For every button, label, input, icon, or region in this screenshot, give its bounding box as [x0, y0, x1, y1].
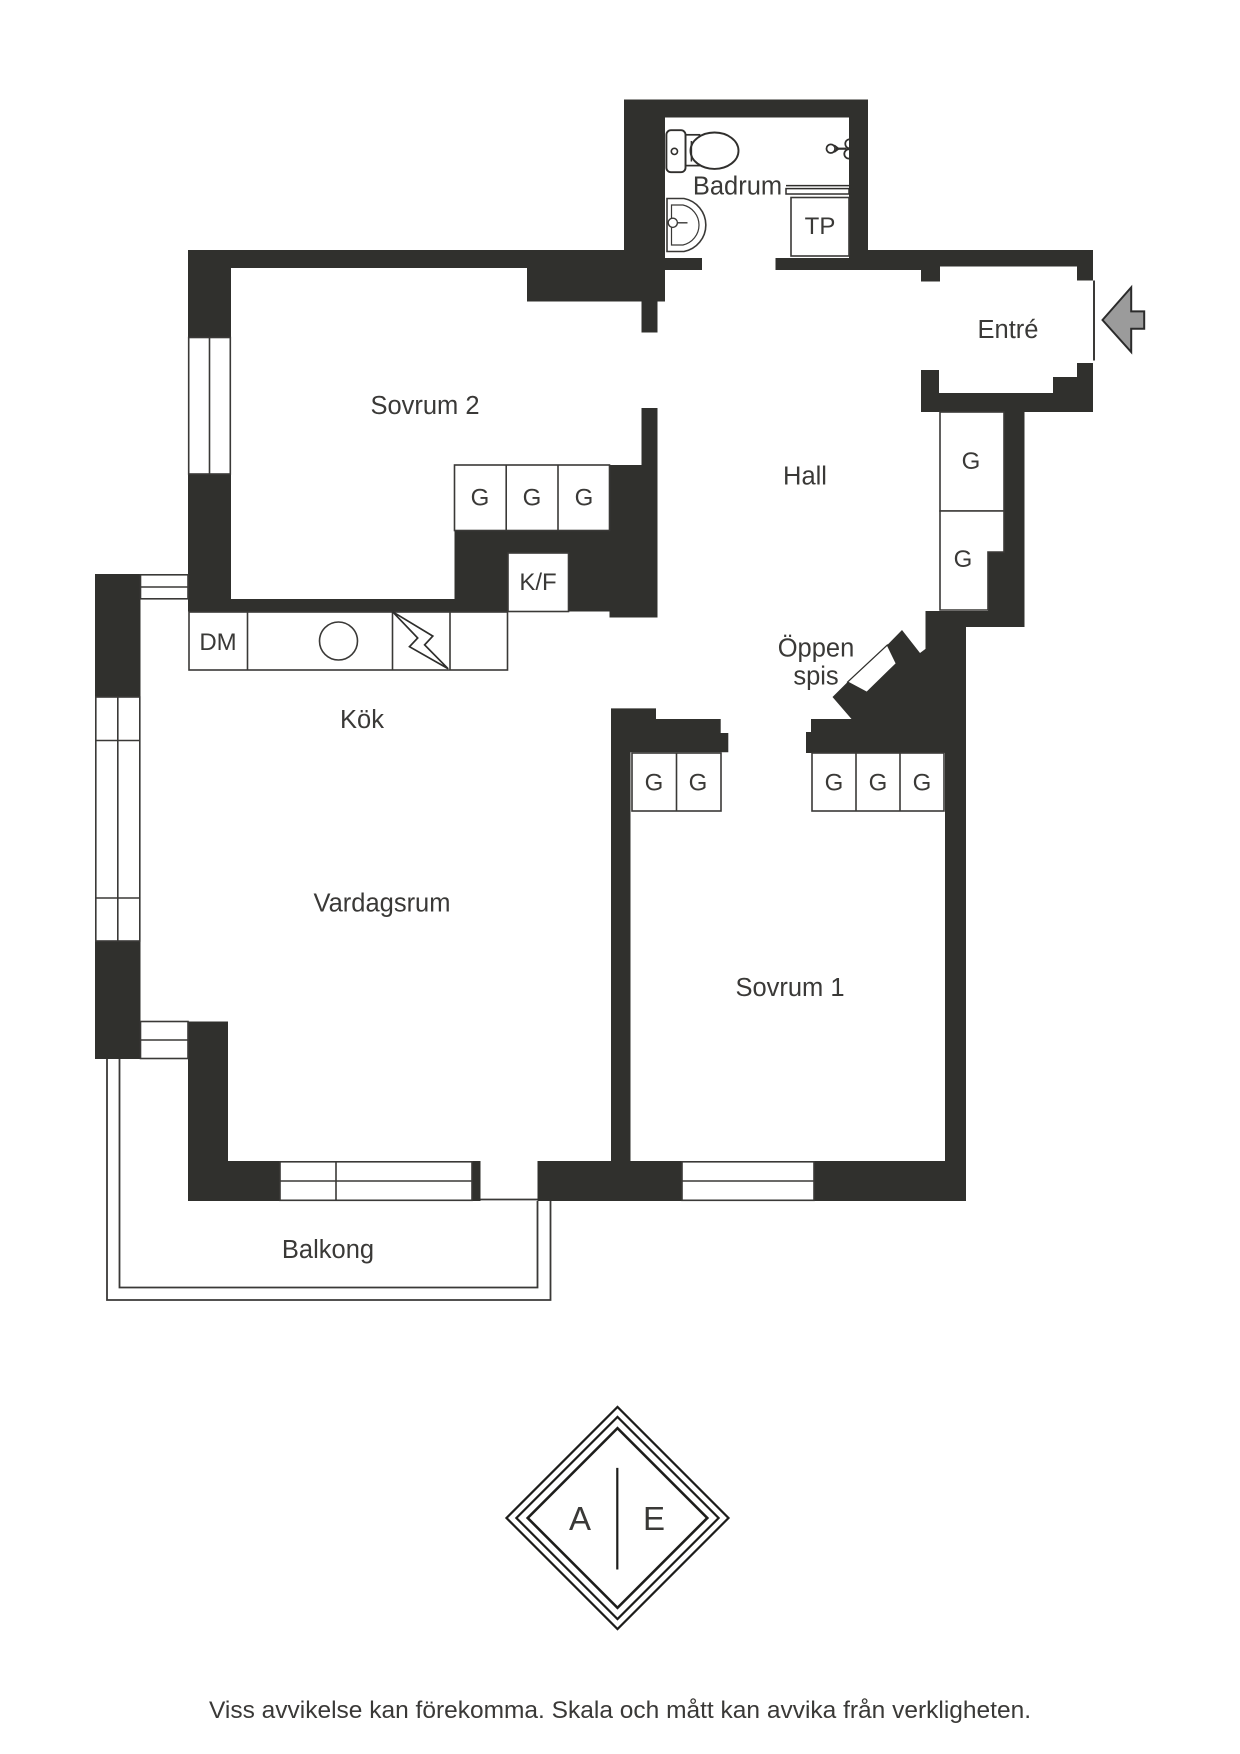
svg-text:G: G — [689, 770, 708, 797]
svg-text:spis: spis — [793, 663, 838, 691]
svg-text:DM: DM — [199, 629, 236, 656]
svg-text:TP: TP — [805, 213, 836, 240]
svg-text:E: E — [643, 1500, 665, 1537]
svg-text:Vardagsrum: Vardagsrum — [313, 890, 450, 918]
svg-text:K/F: K/F — [519, 569, 556, 596]
svg-text:Kök: Kök — [340, 706, 384, 734]
svg-text:G: G — [913, 770, 932, 797]
svg-text:A: A — [569, 1500, 591, 1537]
svg-text:Sovrum 1: Sovrum 1 — [735, 974, 844, 1002]
svg-text:G: G — [869, 770, 888, 797]
svg-text:Badrum: Badrum — [693, 173, 782, 201]
svg-text:Balkong: Balkong — [282, 1236, 374, 1264]
svg-text:G: G — [523, 485, 542, 512]
svg-text:G: G — [645, 770, 664, 797]
svg-text:Sovrum 2: Sovrum 2 — [370, 392, 479, 420]
svg-text:G: G — [954, 546, 973, 573]
svg-text:G: G — [575, 485, 594, 512]
svg-text:G: G — [825, 770, 844, 797]
svg-text:Entré: Entré — [978, 316, 1039, 344]
svg-text:G: G — [962, 448, 981, 475]
svg-text:Öppen: Öppen — [778, 635, 855, 663]
svg-text:Viss avvikelse kan förekomma.: Viss avvikelse kan förekomma. Skala och … — [209, 1697, 1031, 1724]
svg-text:G: G — [471, 485, 490, 512]
svg-text:Hall: Hall — [783, 463, 827, 491]
